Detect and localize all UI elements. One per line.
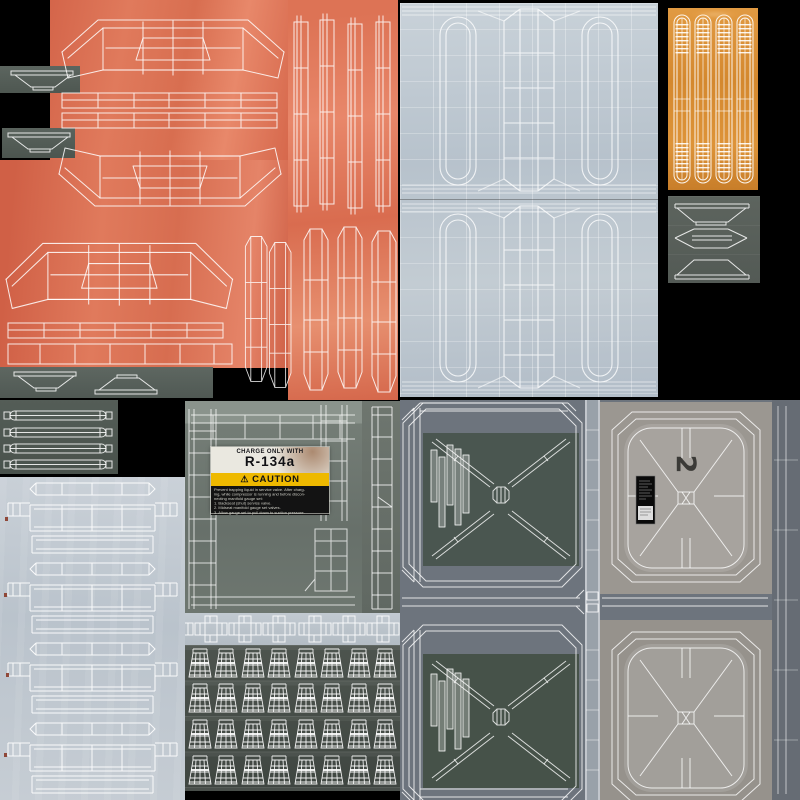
cone-uv-panel xyxy=(185,645,400,791)
sticker-body-section: Prevent trapping liquid in service valve… xyxy=(211,486,329,515)
hex-vent-strip xyxy=(668,196,760,283)
sticker-line: 3. Allow gauge set to pull down to sucti… xyxy=(214,511,329,515)
stencil-glyph: 2 xyxy=(667,449,699,479)
drawer-wireframes xyxy=(0,477,185,800)
pale-drawer-uv-panel xyxy=(0,477,185,800)
hatch-wireframes xyxy=(400,400,800,800)
refrigerant-sticker: CHARGE ONLY WITH R-134a ⚠ CAUTION Preven… xyxy=(211,447,329,513)
warning-triangle-icon: ⚠ xyxy=(240,475,249,484)
glow-highlight xyxy=(688,0,742,16)
texture-atlas-sheet: { "scene": { "description": "UV texture … xyxy=(0,0,800,800)
hex-wireframes xyxy=(668,196,760,283)
light-metal-uv-panel xyxy=(400,3,658,397)
segmented-strip-wireframes xyxy=(362,401,400,615)
box-unwrap-strip xyxy=(157,613,400,645)
rod-uv-panel xyxy=(0,400,118,474)
sticker-top-section: CHARGE ONLY WITH R-134a xyxy=(211,447,329,473)
caution-label-panel: CHARGE ONLY WITH R-134a ⚠ CAUTION Preven… xyxy=(185,401,362,615)
sticker-refrigerant-code: R-134a xyxy=(211,455,329,469)
segmented-strip-panel xyxy=(362,401,400,615)
amber-texture-panel xyxy=(668,8,758,190)
hatch-panel-quadrant xyxy=(400,400,800,800)
mini-label xyxy=(636,476,655,524)
sticker-caution-band: ⚠ CAUTION xyxy=(211,473,329,486)
sticker-caution-text: CAUTION xyxy=(252,474,299,485)
rod-wireframes xyxy=(0,400,118,474)
uv-wireframes-top-left xyxy=(0,0,400,400)
amber-pill-wireframes xyxy=(668,8,758,190)
cross-wireframes xyxy=(157,613,400,645)
cone-wireframes xyxy=(185,645,400,791)
metal-panel-wireframes xyxy=(400,3,658,397)
sticker-body-text: Prevent trapping liquid in service valve… xyxy=(214,488,329,515)
